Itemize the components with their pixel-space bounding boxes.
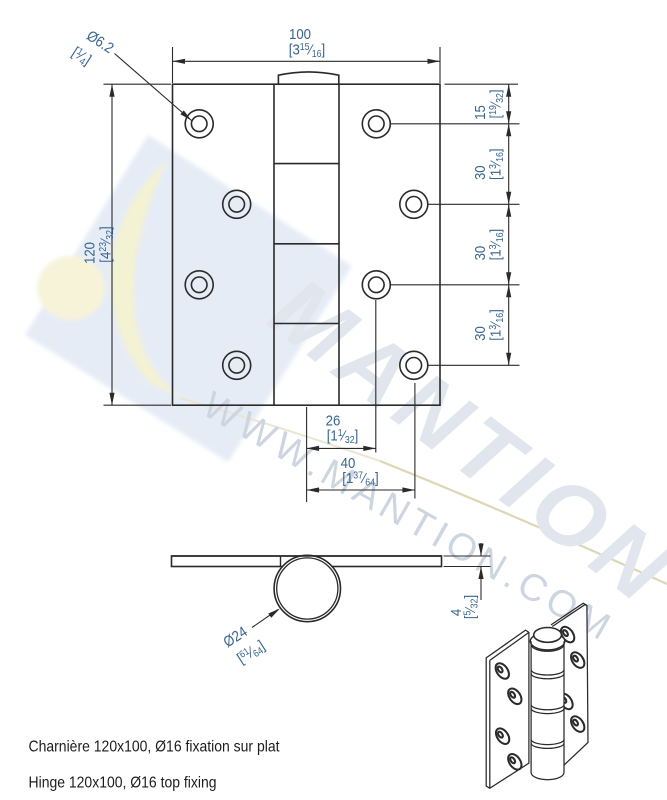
svg-text:Ø6.2: Ø6.2 <box>84 27 117 57</box>
svg-text:[11⁄32]: [11⁄32] <box>327 426 359 445</box>
svg-text:[13⁄16]: [13⁄16] <box>486 148 505 180</box>
svg-text:[13⁄16]: [13⁄16] <box>486 229 505 261</box>
svg-text:Hinge 120x100, Ø16 top fixing: Hinge 120x100, Ø16 top fixing <box>29 775 217 792</box>
svg-text:120: 120 <box>81 242 98 264</box>
svg-text:[5⁄32]: [5⁄32] <box>461 595 480 619</box>
svg-text:[315⁄16]: [315⁄16] <box>289 40 325 59</box>
svg-text:[13⁄16]: [13⁄16] <box>486 309 505 341</box>
svg-text:[19⁄32]: [19⁄32] <box>486 89 505 118</box>
svg-text:[1⁄4]: [1⁄4] <box>68 43 94 69</box>
svg-text:Charnière 120x100, Ø16 fixatio: Charnière 120x100, Ø16 fixation sur plat <box>29 739 280 756</box>
